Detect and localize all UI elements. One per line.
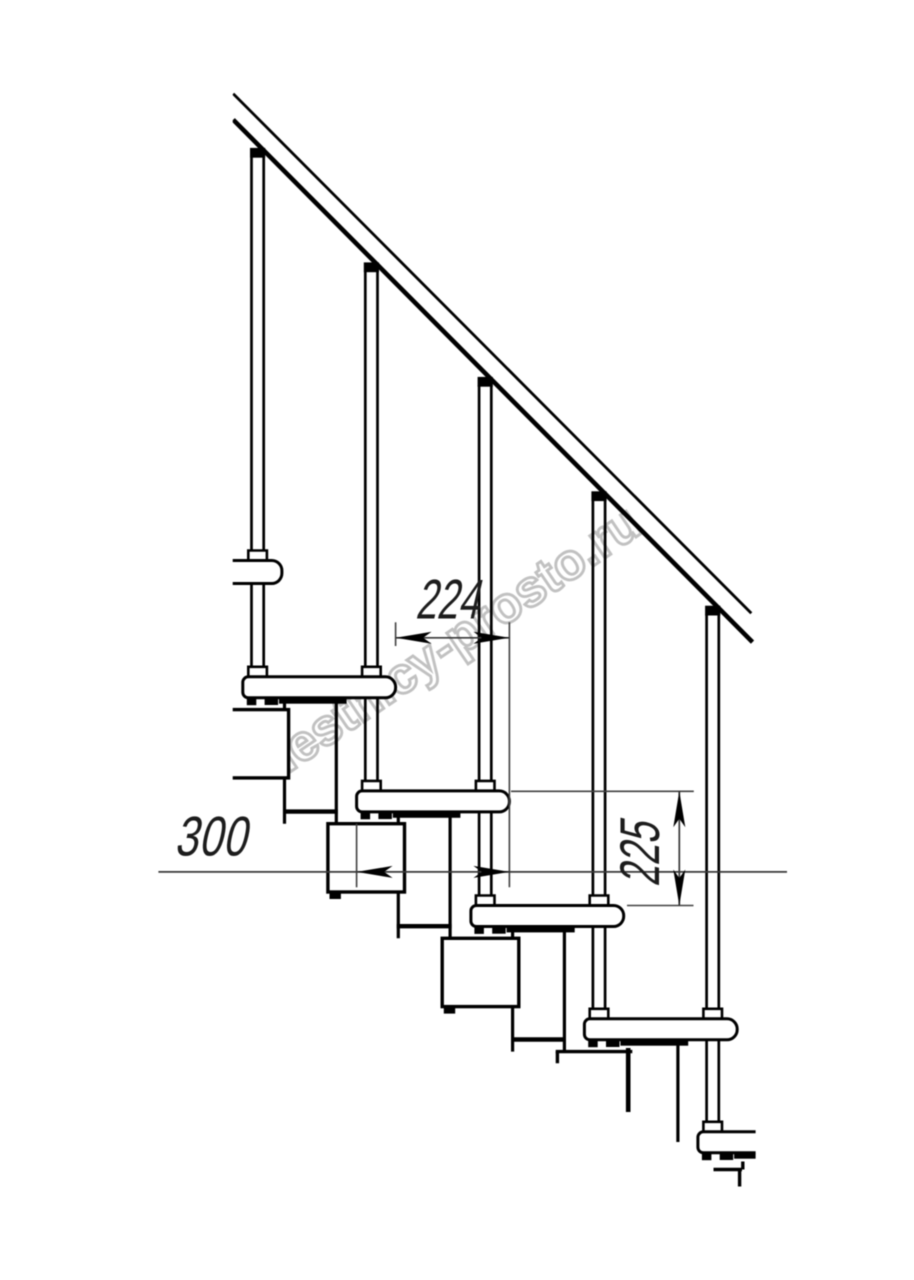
svg-text:225: 225: [610, 812, 672, 890]
svg-text:300: 300: [171, 804, 258, 867]
